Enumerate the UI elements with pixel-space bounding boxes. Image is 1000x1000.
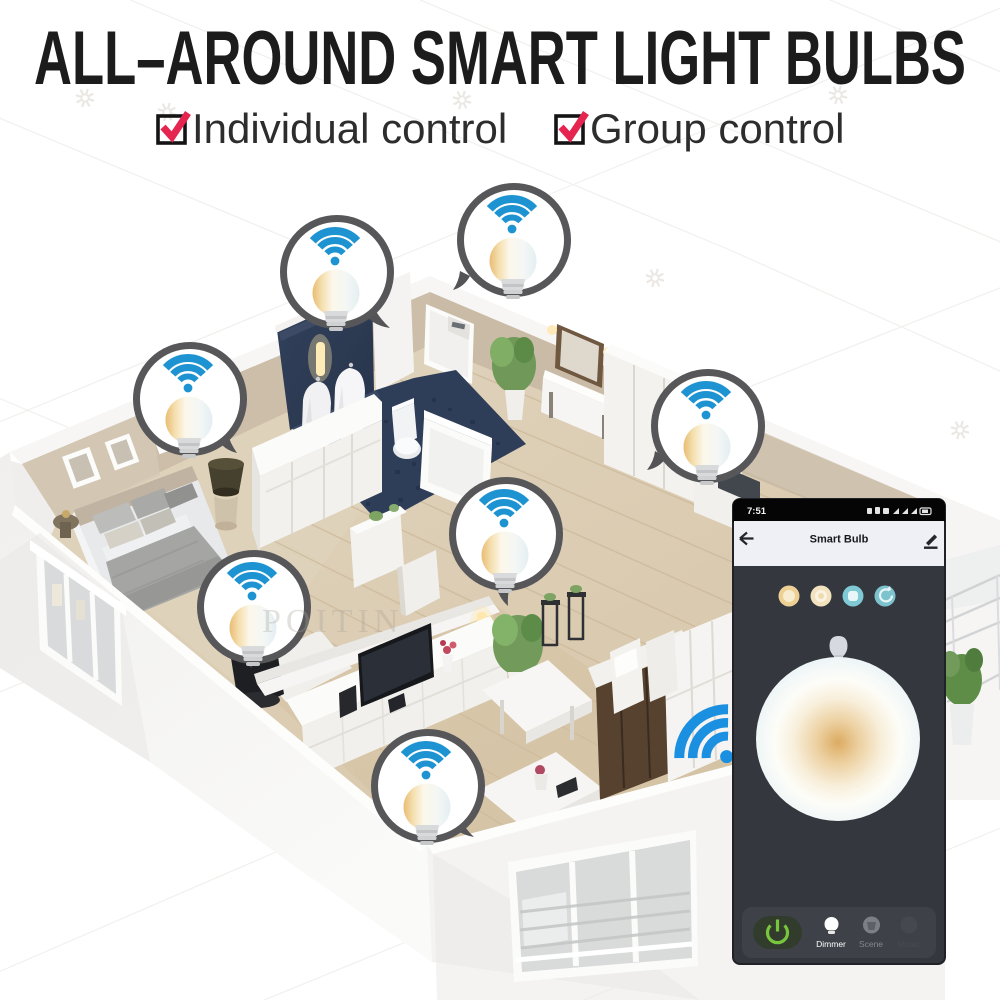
svg-text:Group control: Group control (590, 105, 844, 152)
svg-text:Individual control: Individual control (192, 105, 507, 152)
svg-text:Music: Music (898, 939, 921, 949)
svg-text:7:51: 7:51 (747, 506, 767, 517)
svg-text:ALL–AROUND SMART LIGHT BULBS: ALL–AROUND SMART LIGHT BULBS (34, 16, 966, 101)
svg-text:Dimmer: Dimmer (816, 939, 846, 949)
svg-text:POITIN: POITIN (262, 603, 403, 640)
svg-text:Scene: Scene (859, 939, 883, 949)
svg-text:Smart Bulb: Smart Bulb (810, 534, 869, 546)
